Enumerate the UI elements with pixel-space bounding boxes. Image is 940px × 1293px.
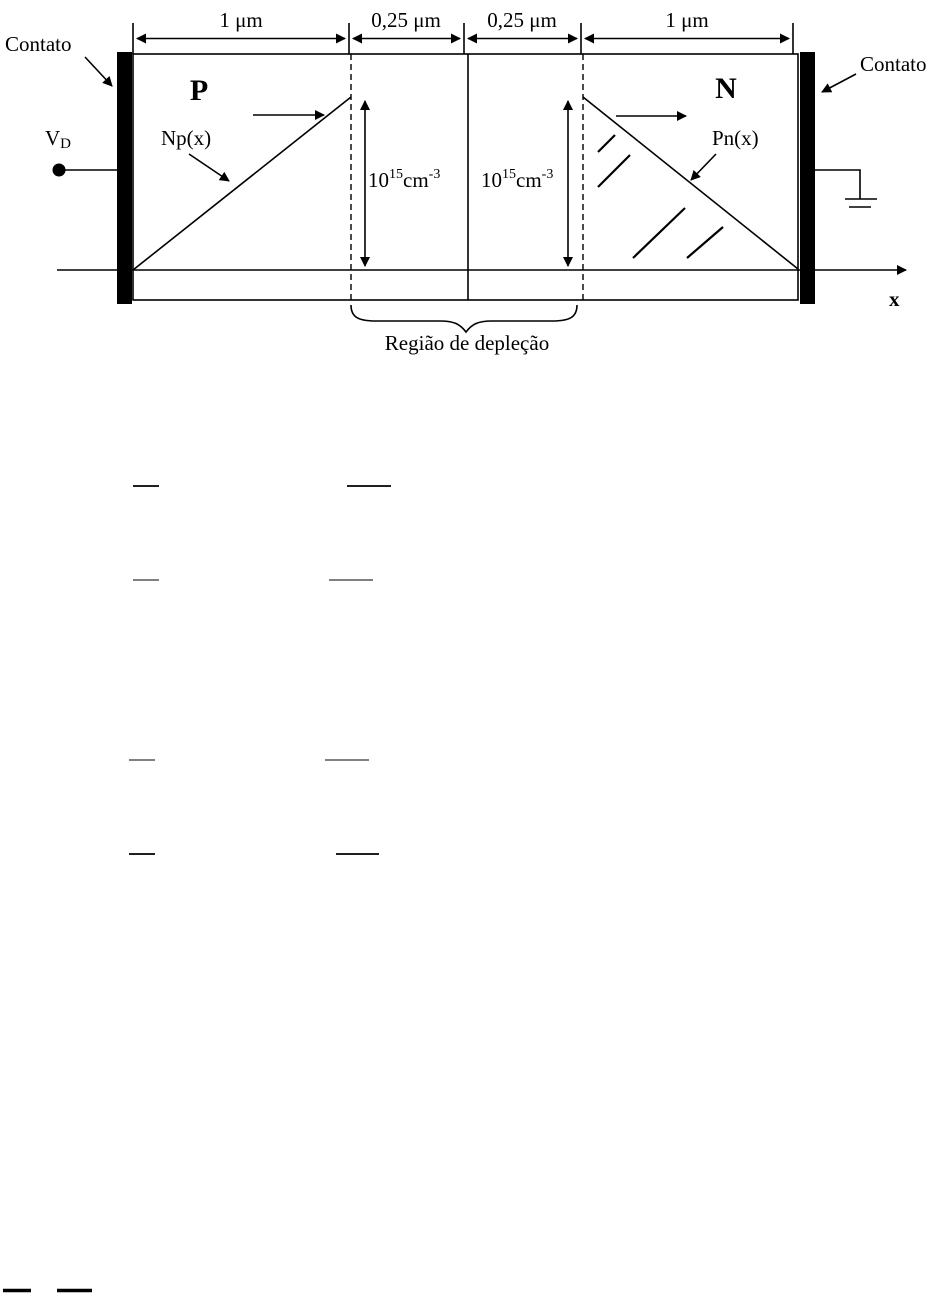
conc-unit: cm: [403, 168, 429, 192]
contact-pointer-right: [822, 74, 856, 92]
region-labels: P N: [190, 72, 737, 107]
ground-wire: [815, 170, 860, 199]
np-pointer-arrow: [189, 154, 229, 181]
contact-label-right: Contato: [860, 52, 927, 76]
dimension-label-depletion-left: 0,25 μm: [371, 8, 441, 32]
document-page: 1 μm 0,25 μm 0,25 μm 1 μm x Contato VD: [0, 0, 940, 1293]
dimension-label-n-width: 1 μm: [665, 8, 708, 32]
x-axis: x: [57, 270, 906, 311]
carrier-profiles: Np(x) Pn(x): [133, 97, 798, 270]
vd-base: V: [45, 126, 60, 150]
device-outline: [133, 54, 798, 300]
pn-pointer-arrow: [691, 154, 716, 180]
hatch-stroke: [598, 135, 615, 152]
dimension-label-depletion-right: 0,25 μm: [487, 8, 557, 32]
depletion-label: Região de depleção: [385, 331, 549, 355]
hatch-stroke: [598, 155, 630, 187]
right-terminal: Contato: [815, 52, 927, 207]
pn-profile-line: [583, 97, 798, 269]
hatch-stroke: [633, 208, 685, 258]
residual-fraction-bars: [3, 486, 391, 1291]
conc-exponent: 15: [502, 167, 516, 182]
p-region-label: P: [190, 74, 208, 107]
vd-subscript: D: [60, 136, 71, 152]
conc-base: 10: [368, 168, 389, 192]
np-profile-label: Np(x): [161, 126, 211, 150]
conc-unit-exponent: -3: [542, 167, 554, 182]
concentration-label-left: 1015cm-3: [368, 167, 440, 192]
concentration-label-right: 1015cm-3: [481, 167, 553, 192]
device-body: [117, 52, 815, 304]
conc-base: 10: [481, 168, 502, 192]
metal-contact-right: [800, 52, 815, 304]
concentration-markers: 1015cm-3 1015cm-3: [365, 101, 568, 266]
metal-contact-left: [117, 52, 132, 304]
x-axis-label: x: [889, 287, 900, 311]
vd-label: VD: [45, 126, 71, 152]
contact-label-left: Contato: [5, 32, 72, 56]
dimension-label-p-width: 1 μm: [219, 8, 262, 32]
terminal-dot: [53, 164, 66, 177]
contact-pointer-left: [85, 57, 112, 86]
left-terminal: Contato VD: [5, 32, 118, 177]
hatching: [598, 135, 723, 258]
np-profile-line: [133, 97, 351, 270]
depletion-brace: [351, 305, 577, 332]
conc-exponent: 15: [389, 167, 403, 182]
pn-junction-diagram: 1 μm 0,25 μm 0,25 μm 1 μm x Contato VD: [0, 0, 940, 1293]
hatch-stroke: [687, 227, 723, 258]
dimension-arrows: 1 μm 0,25 μm 0,25 μm 1 μm: [137, 8, 789, 39]
conc-unit: cm: [516, 168, 542, 192]
n-region-label: N: [715, 72, 737, 105]
depletion-annotation: Região de depleção: [351, 305, 577, 355]
pn-profile-label: Pn(x): [712, 126, 759, 150]
conc-unit-exponent: -3: [429, 167, 441, 182]
